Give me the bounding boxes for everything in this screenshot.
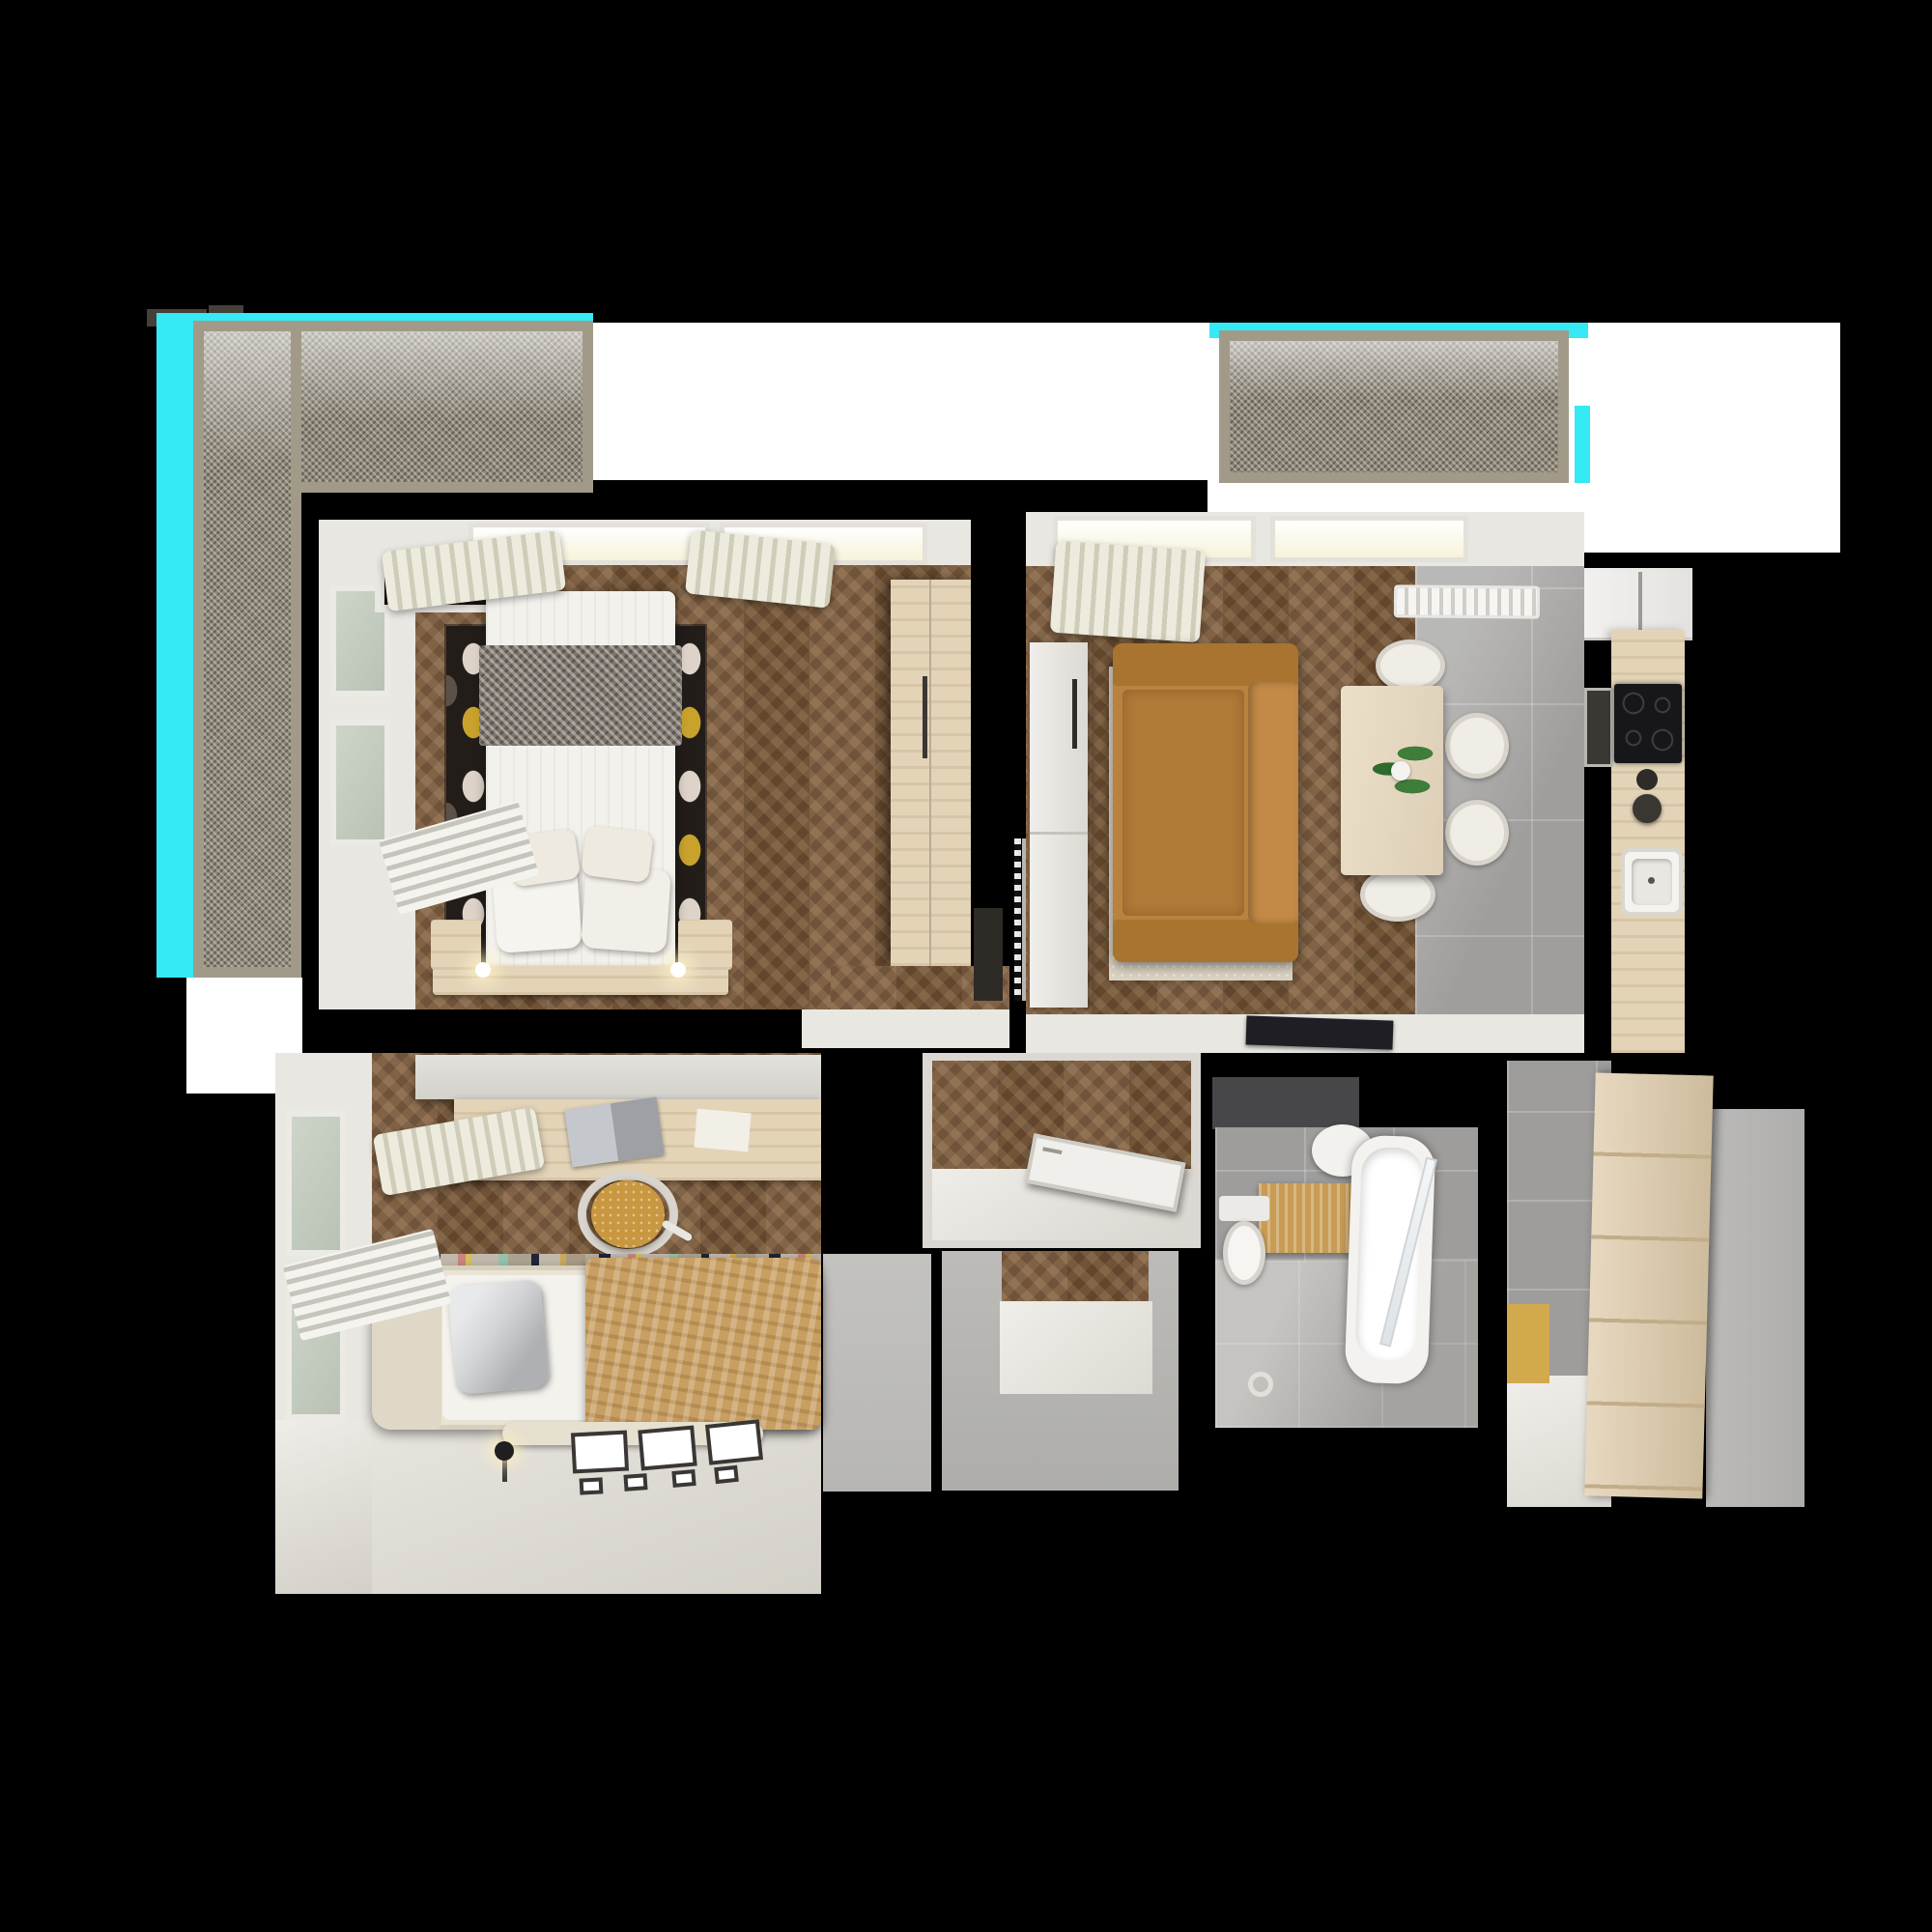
living-window-2 (1270, 516, 1468, 562)
bathroom-dark-header (1212, 1077, 1359, 1129)
kids-picture-frame-3 (705, 1419, 763, 1465)
kids-picture-frame-small-4 (714, 1465, 739, 1484)
bathroom-towel-ring (1248, 1372, 1273, 1397)
bathroom-toilet-tank (1219, 1196, 1269, 1221)
bedroom-door-hinge (1014, 838, 1021, 1001)
bedroom-lamp-left (475, 962, 491, 978)
entry-wardrobe (1584, 1072, 1713, 1498)
bedroom-pillow-small-right (581, 825, 654, 883)
dining-chair-bottom (1360, 867, 1435, 922)
floor-plan-canvas (0, 0, 1932, 1932)
kids-picture-frame-small-2 (623, 1473, 647, 1492)
dining-chair-right1 (1445, 713, 1509, 779)
bedroom-entry-dark-strip (974, 908, 1003, 1001)
balcony-left-cyan-side (156, 325, 195, 978)
living-tablet-on-ledge (1246, 1015, 1394, 1049)
living-sideboard (1030, 642, 1088, 1008)
dining-chair-top (1376, 639, 1445, 692)
living-radiator-vent (1394, 584, 1540, 618)
bedroom-wardrobe (891, 580, 971, 966)
kids-floor-lamp (491, 1441, 520, 1484)
bedroom-nightstand-right (678, 920, 732, 970)
kids-office-chair (572, 1167, 686, 1264)
bathroom-towel (1259, 1183, 1353, 1253)
kids-picture-frame-2 (638, 1426, 696, 1471)
kids-left-window (286, 1111, 346, 1256)
bedroom-herringbone-blanket (479, 645, 682, 746)
bedroom-nightstand-left (431, 920, 481, 970)
kids-tan-blanket (585, 1258, 821, 1430)
white-cutout-top-middle (593, 323, 1207, 480)
kitchen-faucet (1636, 769, 1658, 790)
bedroom-entry-bottom-wall (802, 1009, 1009, 1048)
entry-right-wall (1706, 1109, 1804, 1507)
kids-picture-frame-1 (571, 1431, 629, 1474)
bathroom-toilet-bowl (1223, 1221, 1265, 1285)
balcony-left-mesh-side (193, 321, 301, 978)
storage-closet (942, 1251, 1179, 1491)
kids-picture-frame-small-3 (671, 1469, 696, 1488)
balcony-right-mesh (1219, 330, 1569, 483)
kids-silver-pillow (447, 1279, 549, 1395)
dining-chair-right2 (1445, 800, 1509, 866)
kids-wall-shelf (415, 1055, 821, 1099)
kitchen-cooktop (1614, 684, 1682, 763)
kids-picture-frame-small-1 (580, 1477, 604, 1494)
kids-floor-cream-left (275, 1420, 372, 1594)
storage-grey-block (823, 1254, 931, 1492)
dining-vase (1391, 761, 1410, 781)
living-curtain (1050, 541, 1206, 643)
living-sofa (1113, 643, 1298, 962)
bedroom-left-window2 (330, 720, 390, 845)
kitchen-faucet-body (1633, 794, 1662, 823)
kitchen-oven (1584, 688, 1613, 767)
bedroom-lamp-right (670, 962, 686, 978)
kitchen-sink (1621, 848, 1683, 916)
entry-mat (1507, 1304, 1549, 1383)
balcony-right-cyan-side (1575, 406, 1590, 483)
kids-desk-paper (694, 1109, 751, 1152)
